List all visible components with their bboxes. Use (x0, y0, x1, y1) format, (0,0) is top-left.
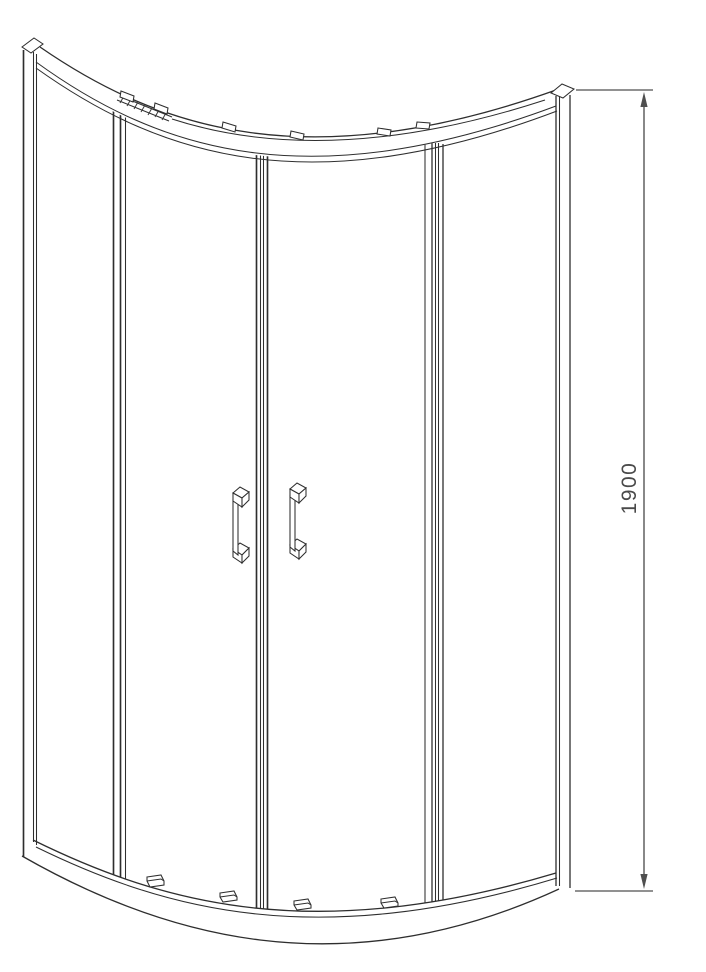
dimension-arrow-down-icon (640, 874, 647, 889)
door-handle-right (290, 483, 306, 559)
quadrant-shower-enclosure-drawing: 1900 (0, 0, 706, 972)
dimension-arrow-up-icon (640, 92, 647, 107)
fixed-panel-left-frame (114, 108, 126, 881)
center-door-stiles (257, 150, 268, 912)
dimension-label: 1900 (618, 462, 641, 515)
right-door-stiles (425, 142, 443, 906)
right-wall-profile (551, 84, 574, 888)
drawing-canvas: 1900 (0, 0, 706, 972)
roller-guide (377, 128, 391, 136)
roller-guide (416, 122, 430, 129)
height-dimension: 1900 (575, 90, 653, 891)
door-handle-left (233, 487, 249, 563)
bottom-curved-rail (22, 840, 559, 944)
left-wall-profile (22, 38, 43, 857)
bottom-rail-body (22, 840, 559, 944)
handle-grip-bar (290, 496, 295, 551)
handle-grip-bar (233, 500, 238, 555)
